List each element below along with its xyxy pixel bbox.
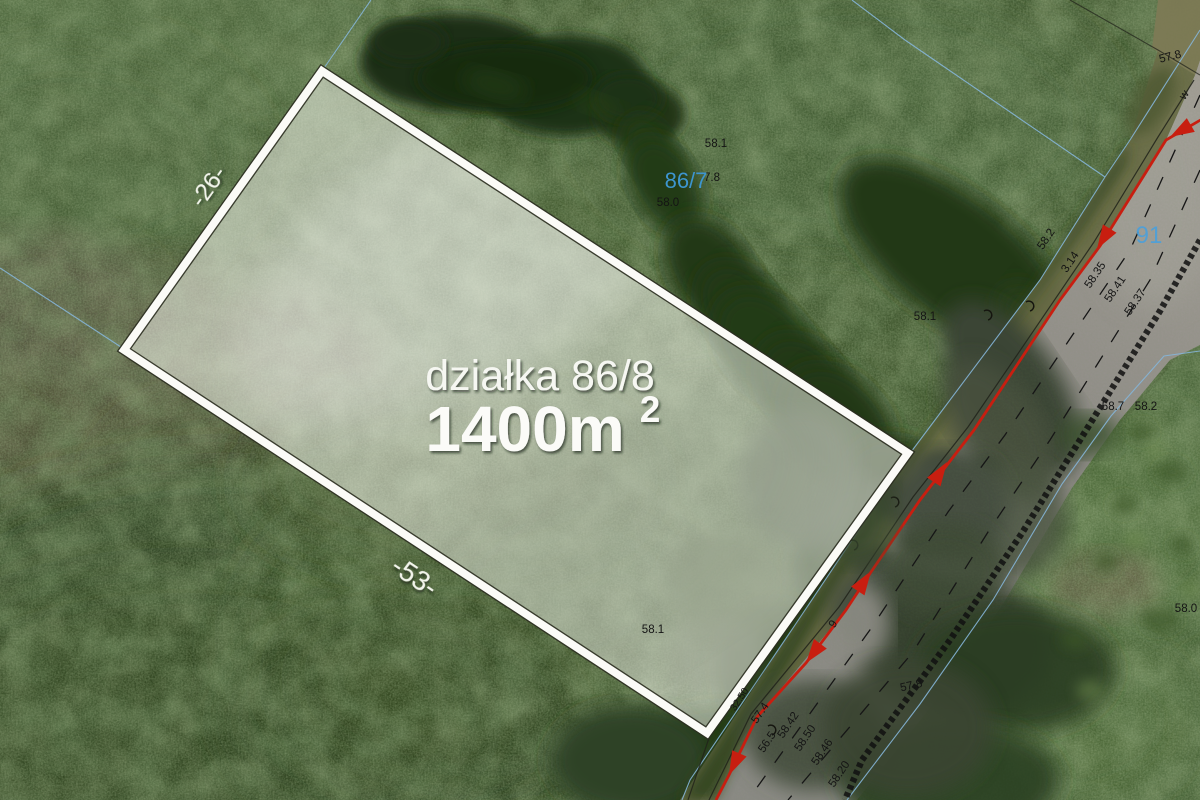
svg-text:58.7: 58.7 — [1102, 401, 1124, 413]
svg-text:58.1: 58.1 — [705, 138, 727, 150]
svg-text:91: 91 — [1136, 222, 1163, 249]
svg-text:1400m: 1400m — [425, 393, 624, 465]
svg-text:58.0: 58.0 — [657, 197, 679, 209]
svg-text:58.1: 58.1 — [914, 311, 936, 323]
svg-text:58.0: 58.0 — [1175, 603, 1197, 615]
svg-text:2: 2 — [640, 389, 661, 430]
svg-text:86/7: 86/7 — [665, 168, 708, 193]
svg-text:58.1: 58.1 — [642, 624, 664, 636]
svg-text:58.2: 58.2 — [1135, 401, 1157, 413]
